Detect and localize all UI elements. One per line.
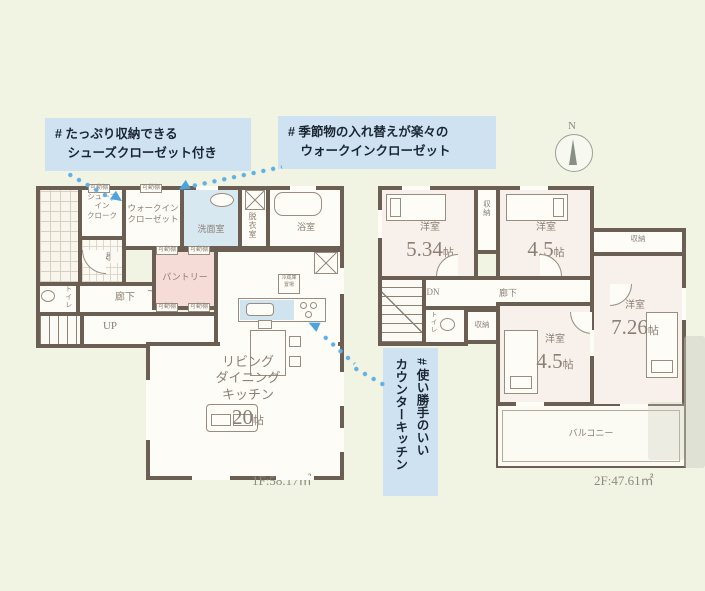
burner-icon (305, 311, 312, 318)
chair-icon (258, 320, 272, 329)
porch (36, 186, 82, 286)
bathtub-icon (274, 192, 322, 216)
dressing-room-label: 脱衣室 (247, 212, 257, 239)
floor2-area: 2F:47.61㎡ (594, 470, 654, 489)
watermark (684, 336, 705, 468)
storage-bed4-label: 収納 (600, 234, 676, 243)
shelf-label: 可動棚 (140, 184, 162, 193)
balcony-label: バルコニー (546, 428, 636, 439)
pillow-icon (651, 360, 673, 373)
pantry-label: パントリー (154, 272, 216, 283)
washing-machine-icon (245, 190, 265, 210)
bedroom3-size-unit: 帖 (563, 359, 574, 371)
callout-shoes-closet: # たっぷり収納できる シューズクローゼット付き (45, 118, 251, 171)
fridge-space: 冷蔵庫 置場 (278, 274, 300, 294)
compass-north-label: N (568, 120, 576, 132)
washbasin-icon (210, 193, 234, 207)
hallway-2f-label: 廊下 (486, 288, 530, 299)
storage-top-label: 収納 (482, 200, 491, 217)
utility-box-icon (314, 252, 338, 274)
toilet-2f-label: トイレ (428, 311, 436, 334)
bedroom4-size: 7.26帖 (594, 314, 676, 340)
toilet-1f-label: トイレ (64, 285, 73, 309)
watermark (648, 402, 684, 460)
storage-hall-label: 収納 (466, 320, 498, 329)
toilet-bowl-icon (41, 290, 55, 302)
shelf-label: 可動棚 (156, 246, 178, 255)
chair-icon (289, 336, 301, 347)
bedroom4-size-number: 7.26 (611, 315, 648, 339)
stairs-up (36, 312, 84, 348)
ldk-size-label: 20帖 (186, 404, 310, 430)
callout-counter-kitchen: # 使い勝手のいい カウンターキッチン (383, 348, 438, 496)
bedroom2-label: 洋室 (506, 222, 586, 235)
hallway-1f-label: 廊下 (100, 292, 150, 305)
compass-needle-icon (569, 139, 577, 165)
sink-icon (246, 303, 274, 316)
shelf-label: 可動棚 (188, 246, 210, 255)
ldk-size-unit: 帖 (253, 415, 264, 427)
bedroom3-size-number: 4.5 (536, 349, 562, 373)
washroom-label: 洗面室 (182, 224, 240, 235)
bedroom3-label: 洋室 (520, 334, 590, 347)
bedroom1-size: 5.34帖 (384, 236, 476, 262)
stairs-down (378, 276, 426, 346)
toilet-bowl-icon (440, 318, 455, 331)
bedroom2-size-unit: 帖 (554, 247, 565, 259)
burner-icon (300, 302, 307, 309)
floorplan-page: # たっぷり収納できる シューズクローゼット付き # 季節物の入れ替えが楽々の … (0, 0, 705, 591)
shelf-label: 可動棚 (188, 303, 210, 312)
bedroom4-size-unit: 帖 (648, 325, 659, 337)
bedroom3-size: 4.5帖 (516, 348, 594, 374)
bedroom1-label: 洋室 (390, 222, 470, 235)
bathroom-label: 浴室 (278, 222, 334, 233)
callout-walk-in-closet: # 季節物の入れ替えが楽々の ウォークインクローゼット (278, 116, 496, 169)
bedroom1-size-number: 5.34 (406, 237, 443, 261)
ldk-size-number: 20 (232, 405, 253, 429)
ldk-label: リビング ダイニング キッチン (186, 354, 310, 403)
stairs-up-label: UP (92, 320, 128, 334)
pillow-icon (553, 198, 564, 217)
burner-icon (310, 302, 317, 309)
pillow-icon (510, 376, 532, 389)
walk-in-closet-label: ウォークイン クローゼット (123, 203, 183, 224)
pillow-icon (390, 198, 401, 217)
shelf-label: 可動棚 (156, 303, 178, 312)
